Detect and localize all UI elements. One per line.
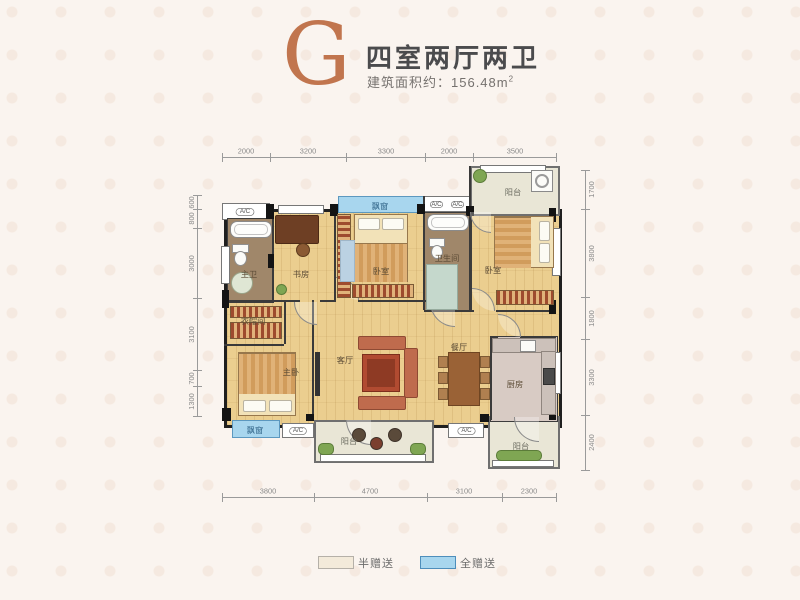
room-label-dining: 餐厅	[447, 340, 472, 352]
wall-column	[222, 290, 229, 308]
dim-tick	[556, 493, 557, 502]
pillow	[243, 400, 266, 412]
washing-machine-icon	[531, 170, 553, 192]
dim-tick	[425, 153, 426, 162]
wall	[469, 166, 471, 310]
room-label-master-bath: 主卫	[237, 267, 262, 279]
floorplan-page: G 四室两厅两卫 建筑面积约：156.48m2	[0, 0, 800, 600]
plant-icon	[276, 284, 287, 295]
dim-tick	[222, 153, 223, 162]
dim-tick	[581, 297, 590, 298]
dim-bottom-4: 2300	[514, 487, 544, 495]
bathtub-inner	[431, 217, 465, 228]
dim-right-4: 3300	[588, 366, 596, 388]
wall-column	[306, 414, 314, 421]
wardrobe-icon	[496, 290, 554, 305]
sink-icon	[520, 340, 536, 352]
dining-table-icon	[448, 352, 480, 406]
desk-icon	[275, 215, 319, 244]
chair-icon	[480, 388, 490, 400]
dim-tick	[193, 298, 202, 299]
washer-drum	[535, 174, 549, 188]
unit-type-letter: G	[282, 12, 351, 98]
sofa-icon	[404, 348, 418, 398]
dim-left-5: 700	[188, 367, 196, 389]
room-label-balcony-top: 阳台	[501, 185, 526, 197]
coffee-table-inner	[367, 359, 395, 387]
chair-icon	[438, 372, 448, 384]
window	[221, 246, 230, 284]
window	[320, 454, 426, 462]
area-superscript: 2	[509, 75, 514, 84]
room-label-bathroom: 卫生间	[431, 251, 464, 263]
dim-top-1: 2000	[231, 147, 261, 155]
rug	[340, 240, 355, 282]
dim-tick	[556, 153, 557, 162]
bathtub-icon	[427, 214, 469, 231]
dim-right-1: 1700	[588, 178, 596, 200]
wall	[334, 212, 336, 300]
plant-icon	[473, 169, 487, 183]
room-label-balcony-bottom: 阳台	[337, 434, 362, 446]
wall-column	[268, 254, 274, 268]
wall	[224, 300, 300, 302]
legend-half-gift-label: 半赠送	[358, 555, 394, 571]
dimension-line-right	[585, 170, 586, 470]
wall	[320, 300, 336, 302]
dim-bottom-1: 3800	[253, 487, 283, 495]
room-label-bay-window-bottom: 飘窗	[243, 423, 268, 435]
dim-left-3: 3000	[188, 252, 196, 274]
bathtub-inner	[234, 224, 268, 235]
dimension-line-bottom	[222, 497, 557, 498]
bed-icon	[494, 216, 554, 268]
dim-top-4: 2000	[434, 147, 464, 155]
bed-icon	[238, 352, 296, 416]
room-label-bedroom-right: 卧室	[481, 263, 506, 275]
dimension-line-top	[222, 157, 557, 158]
dim-tick	[581, 209, 590, 210]
dim-tick	[581, 470, 590, 471]
dim-tick	[473, 153, 474, 162]
dim-bottom-3: 3100	[449, 487, 479, 495]
chair-icon	[480, 356, 490, 368]
ac-label: A/C	[236, 208, 255, 215]
planter-pot-icon	[388, 428, 402, 442]
dim-tick	[502, 493, 503, 502]
dim-tick	[193, 416, 202, 417]
dim-left-2: 800	[188, 207, 196, 229]
dim-left-4: 3100	[188, 323, 196, 345]
wall	[224, 344, 284, 346]
wall-column	[266, 204, 274, 219]
dim-right-2: 3800	[588, 242, 596, 264]
wall-column	[417, 204, 425, 214]
wardrobe-icon	[352, 284, 414, 298]
dim-bottom-2: 4700	[355, 487, 385, 495]
legend-full-gift-label: 全赠送	[460, 555, 496, 571]
ac-label: A/C	[451, 201, 464, 208]
sofa-icon	[358, 396, 406, 410]
wall	[496, 310, 556, 312]
dim-tick	[222, 493, 223, 502]
sofa-icon	[358, 336, 406, 350]
dim-left-6: 1300	[188, 390, 196, 412]
dim-right-5: 2400	[588, 431, 596, 453]
ac-label: A/C	[458, 427, 476, 434]
pillow	[539, 221, 550, 241]
chair-icon	[438, 388, 448, 400]
room-label-master-bedroom: 主卧	[279, 365, 304, 377]
dim-tick	[581, 339, 590, 340]
dim-tick	[427, 493, 428, 502]
dim-tick	[581, 415, 590, 416]
pillow	[539, 243, 550, 263]
dim-top-5: 3500	[500, 147, 530, 155]
area-text: 建筑面积约：156.48m	[367, 75, 509, 90]
room-label-bay-window-top: 飘窗	[368, 199, 393, 211]
dim-tick	[270, 153, 271, 162]
dim-tick	[346, 153, 347, 162]
legend-full-gift-swatch	[420, 556, 456, 569]
blanket	[495, 217, 531, 268]
pillow	[269, 400, 292, 412]
pillow	[382, 218, 404, 230]
room-label-kitchen: 厨房	[503, 377, 528, 389]
bathtub-icon	[230, 221, 272, 238]
legend-half-gift-swatch	[318, 556, 354, 569]
room-label-cloakroom: 衣帽间	[237, 314, 270, 326]
chair-icon	[296, 243, 310, 257]
shower-area	[426, 264, 458, 310]
planter-pot-icon	[370, 437, 383, 450]
tv-icon	[315, 352, 320, 396]
window	[278, 205, 324, 214]
wall	[284, 302, 286, 344]
toilet-bowl	[234, 251, 247, 266]
wall-column	[480, 414, 489, 422]
dim-top-3: 3300	[371, 147, 401, 155]
wall-column	[222, 408, 231, 421]
dim-tick	[581, 170, 590, 171]
coffee-table-icon	[362, 354, 400, 392]
room-label-balcony-bottom-right: 阳台	[509, 439, 534, 451]
chair-icon	[438, 356, 448, 368]
window	[492, 460, 554, 467]
area-subtitle: 建筑面积约：156.48m2	[367, 72, 514, 91]
pillow	[358, 218, 380, 230]
room-label-bedroom-mid: 卧室	[369, 264, 394, 276]
dim-top-2: 3200	[293, 147, 323, 155]
room-label-living: 客厅	[333, 353, 358, 365]
page-title: 四室两厅两卫	[366, 38, 540, 75]
chair-icon	[480, 372, 490, 384]
room-label-study: 书房	[289, 267, 314, 279]
dim-right-3: 1800	[588, 307, 596, 329]
plant-icon	[318, 443, 334, 455]
ac-label: A/C	[289, 427, 306, 434]
ac-label: A/C	[430, 201, 443, 208]
dim-tick	[314, 493, 315, 502]
stove-icon	[543, 368, 555, 385]
wall	[358, 300, 430, 302]
plant-icon	[410, 443, 426, 455]
